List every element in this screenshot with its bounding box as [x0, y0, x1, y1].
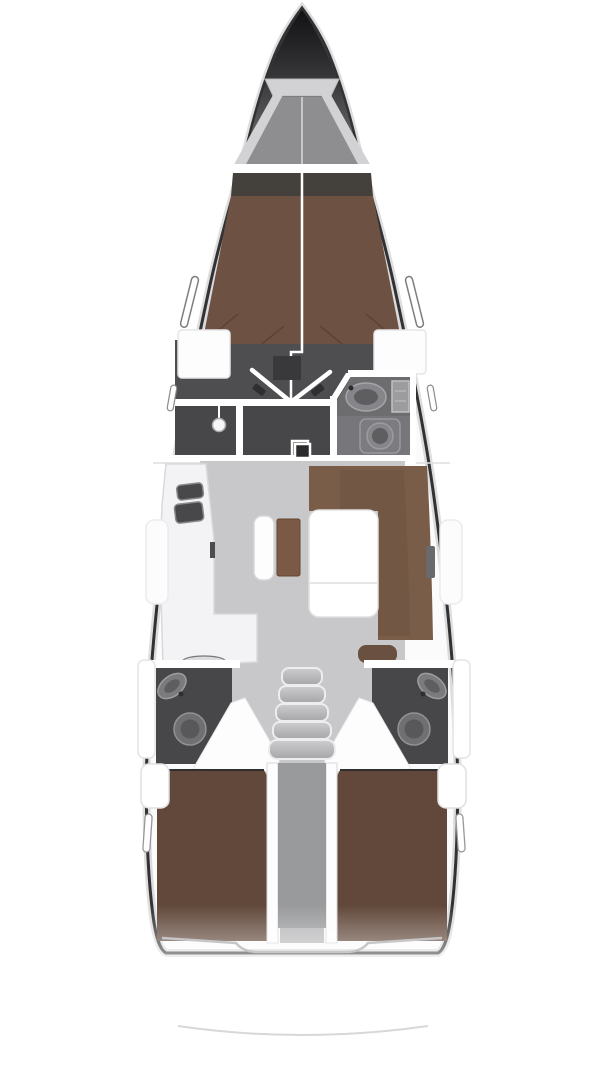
cabin-seat	[273, 356, 301, 380]
toilet-room	[243, 406, 332, 458]
step-2	[279, 686, 325, 703]
starboard-head-top-wall	[364, 660, 454, 668]
hull-window-starboard-forward	[405, 276, 424, 328]
salon-table	[309, 510, 378, 617]
nav-seat	[254, 516, 274, 580]
port-head-faucet	[179, 692, 184, 697]
engine-compartment	[278, 763, 326, 928]
galley-sink-2	[174, 501, 204, 523]
wall-head-right	[410, 370, 416, 460]
shower-head-icon	[213, 419, 226, 432]
starboard-head-faucet	[421, 692, 426, 697]
yacht-floor-plan	[0, 0, 608, 1080]
forward-head-sink-basin	[354, 389, 378, 405]
anchor-locker-front	[265, 79, 339, 96]
starboard-deck-panel-mid	[440, 520, 462, 604]
wall-head-left	[330, 396, 337, 458]
galley-stove-knobs	[210, 542, 215, 558]
step-3	[276, 704, 328, 721]
starboard-deck-panel-aft1	[453, 660, 470, 758]
forward-head-faucet	[349, 386, 354, 391]
galley-sink-1	[176, 482, 204, 500]
mast-foot	[295, 444, 310, 458]
port-deck-panel-aft2	[141, 764, 169, 808]
wall-head-top	[348, 370, 416, 377]
shower-room	[175, 406, 237, 458]
port-head-top-wall	[150, 660, 240, 668]
wall-shower-top	[170, 399, 332, 406]
step-4	[273, 722, 331, 739]
port-head-toilet-bowl	[181, 720, 200, 739]
step-5	[269, 740, 335, 759]
hull-window-starboard-mid	[427, 385, 437, 412]
port-deck-panel-mid	[146, 520, 168, 604]
wardrobe-locker-starboard	[374, 330, 426, 374]
chart-table	[277, 519, 300, 576]
starboard-head-toilet-bowl	[405, 720, 424, 739]
step-1	[282, 668, 322, 685]
port-deck-panel-aft1	[138, 660, 155, 758]
starboard-deck-panel-aft2	[438, 764, 466, 808]
wall-shower-divider	[236, 402, 243, 460]
starboard-deck-locker-mark	[426, 546, 435, 578]
hull-window-port-forward	[180, 276, 199, 328]
floor-plan-svg	[0, 0, 608, 1080]
bow-section	[223, 10, 381, 174]
stern-fade	[110, 905, 500, 1080]
stern	[110, 905, 500, 1080]
forward-head-toilet-bowl	[372, 428, 388, 444]
forward-head-cabinet	[392, 381, 409, 412]
wardrobe-locker-port	[178, 330, 230, 378]
